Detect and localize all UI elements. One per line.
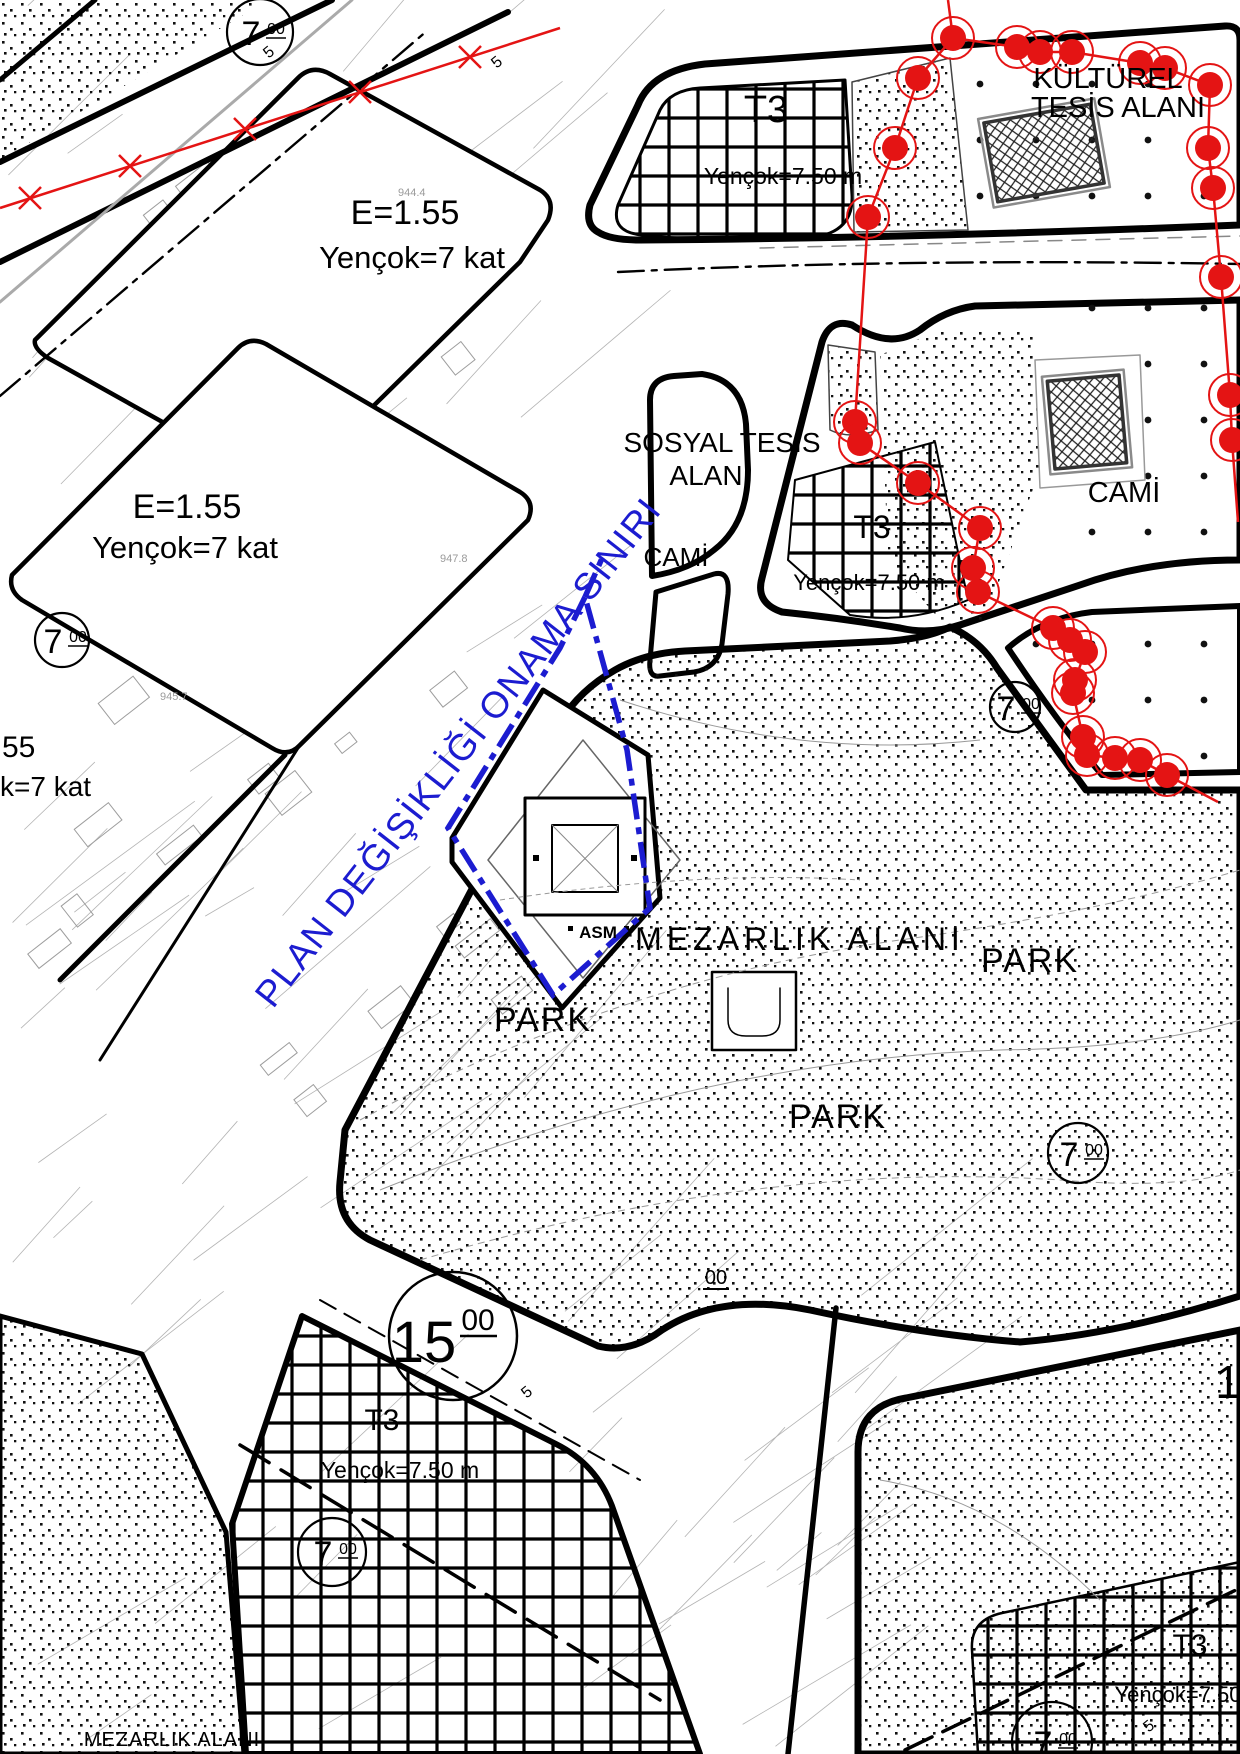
mosque-building xyxy=(1042,370,1132,475)
residential-2-height: Yençok=7 kat xyxy=(92,530,278,565)
t3-bl-height: Yençok=7.50 m xyxy=(321,1457,479,1483)
boundary-marker-dot xyxy=(882,135,908,161)
park-label-1: PARK xyxy=(981,942,1079,980)
t3-br-label: T3 xyxy=(1172,1629,1207,1662)
boundary-marker-dot xyxy=(1027,39,1053,65)
boundary-marker-dot xyxy=(967,515,993,541)
t3-br-height: Yençok=7.50 xyxy=(1114,1682,1240,1707)
road-width-7-sup: 00 xyxy=(1085,1142,1103,1159)
boundary-marker-dot xyxy=(855,204,881,230)
asm-dot-right xyxy=(631,855,637,861)
boundary-marker-dot xyxy=(1208,264,1234,290)
residential-1-far: E=1.55 xyxy=(351,194,460,232)
survey-label-1: 944.4 xyxy=(398,187,426,199)
residential-2-far: E=1.55 xyxy=(133,488,242,526)
boundary-marker-dot xyxy=(1004,34,1030,60)
road-width-7: 7 xyxy=(314,1535,333,1573)
boundary-marker-dot xyxy=(1195,135,1221,161)
boundary-marker-dot xyxy=(1060,680,1086,706)
social-label-2: ALAN xyxy=(669,460,742,491)
social-label-1: SOSYAL TESİS xyxy=(623,427,820,458)
road-width-7-sup: 00 xyxy=(1022,696,1040,713)
boundary-marker-dot xyxy=(1102,745,1128,771)
cultural-label-2: TESİS ALANI xyxy=(1031,91,1205,124)
road-width-00: 00 xyxy=(705,1267,727,1289)
mosque-right-label: CAMİ xyxy=(1088,476,1161,509)
residential-cut-far: 55 xyxy=(2,731,35,764)
t3-top-label: T3 xyxy=(744,89,788,131)
road-width-7: 7 xyxy=(242,15,261,53)
road-width-7-sup: 00 xyxy=(339,1541,357,1558)
road-width-15-sup: 00 xyxy=(461,1304,494,1337)
boundary-marker-dot xyxy=(1154,762,1180,788)
t3-bl-label: T3 xyxy=(364,1404,399,1437)
right-edge-number: 1 xyxy=(1215,1356,1240,1408)
boundary-marker-dot xyxy=(1059,39,1085,65)
boundary-marker-dot xyxy=(1127,747,1153,773)
cemetery-structure xyxy=(712,972,796,1050)
asm-label-dot-left xyxy=(568,926,573,931)
survey-label-3: 947.8 xyxy=(440,553,468,565)
cemetery-bottom-label: MEZARLIK ALANI xyxy=(84,1729,260,1751)
road-width-7: 7 xyxy=(1060,1136,1079,1174)
road-width-7: 7 xyxy=(44,623,63,661)
zoning-plan-map: 15 00 700700700700700700 5555 00 1 E=1.5… xyxy=(0,0,1240,1754)
boundary-marker-dot xyxy=(905,65,931,91)
road-width-7-sup: 00 xyxy=(267,21,285,38)
cultural-label-1: KÜLTÜREL xyxy=(1033,63,1182,95)
road-width-7-sup: 00 xyxy=(69,629,87,646)
asm-label: ASM xyxy=(579,923,617,942)
zoning-plan-canvas: 15 00 700700700700700700 5555 00 1 E=1.5… xyxy=(0,0,1240,1754)
survey-label-2: 945.7 xyxy=(160,691,188,703)
park-label-3: PARK xyxy=(789,1098,887,1136)
road-width-7-sup: 00 xyxy=(1059,1731,1077,1748)
t3-top-height: Yençok=7.50 m xyxy=(704,163,862,189)
asm-dot-left xyxy=(533,855,539,861)
road-width-7: 7 xyxy=(1034,1725,1053,1754)
road-width-15: 15 xyxy=(392,1310,457,1375)
boundary-marker-dot xyxy=(1200,175,1226,201)
mosque-small-label: CAMİ xyxy=(644,542,709,572)
boundary-marker-dot xyxy=(1074,742,1100,768)
residential-1-height: Yençok=7 kat xyxy=(319,240,505,275)
residential-cut-height: k=7 kat xyxy=(0,771,91,802)
boundary-marker-dot xyxy=(965,579,991,605)
boundary-marker-dot xyxy=(940,25,966,51)
boundary-marker-dot xyxy=(847,430,873,456)
t3-mid-height: Yençok=7.50 m xyxy=(793,570,944,595)
park-label-2: PARK xyxy=(494,1001,592,1039)
t3-mid-label: T3 xyxy=(853,509,890,545)
cemetery-label: MEZARLIK ALANI xyxy=(635,921,965,957)
road-width-7: 7 xyxy=(997,690,1016,728)
boundary-marker-dot xyxy=(905,470,931,496)
